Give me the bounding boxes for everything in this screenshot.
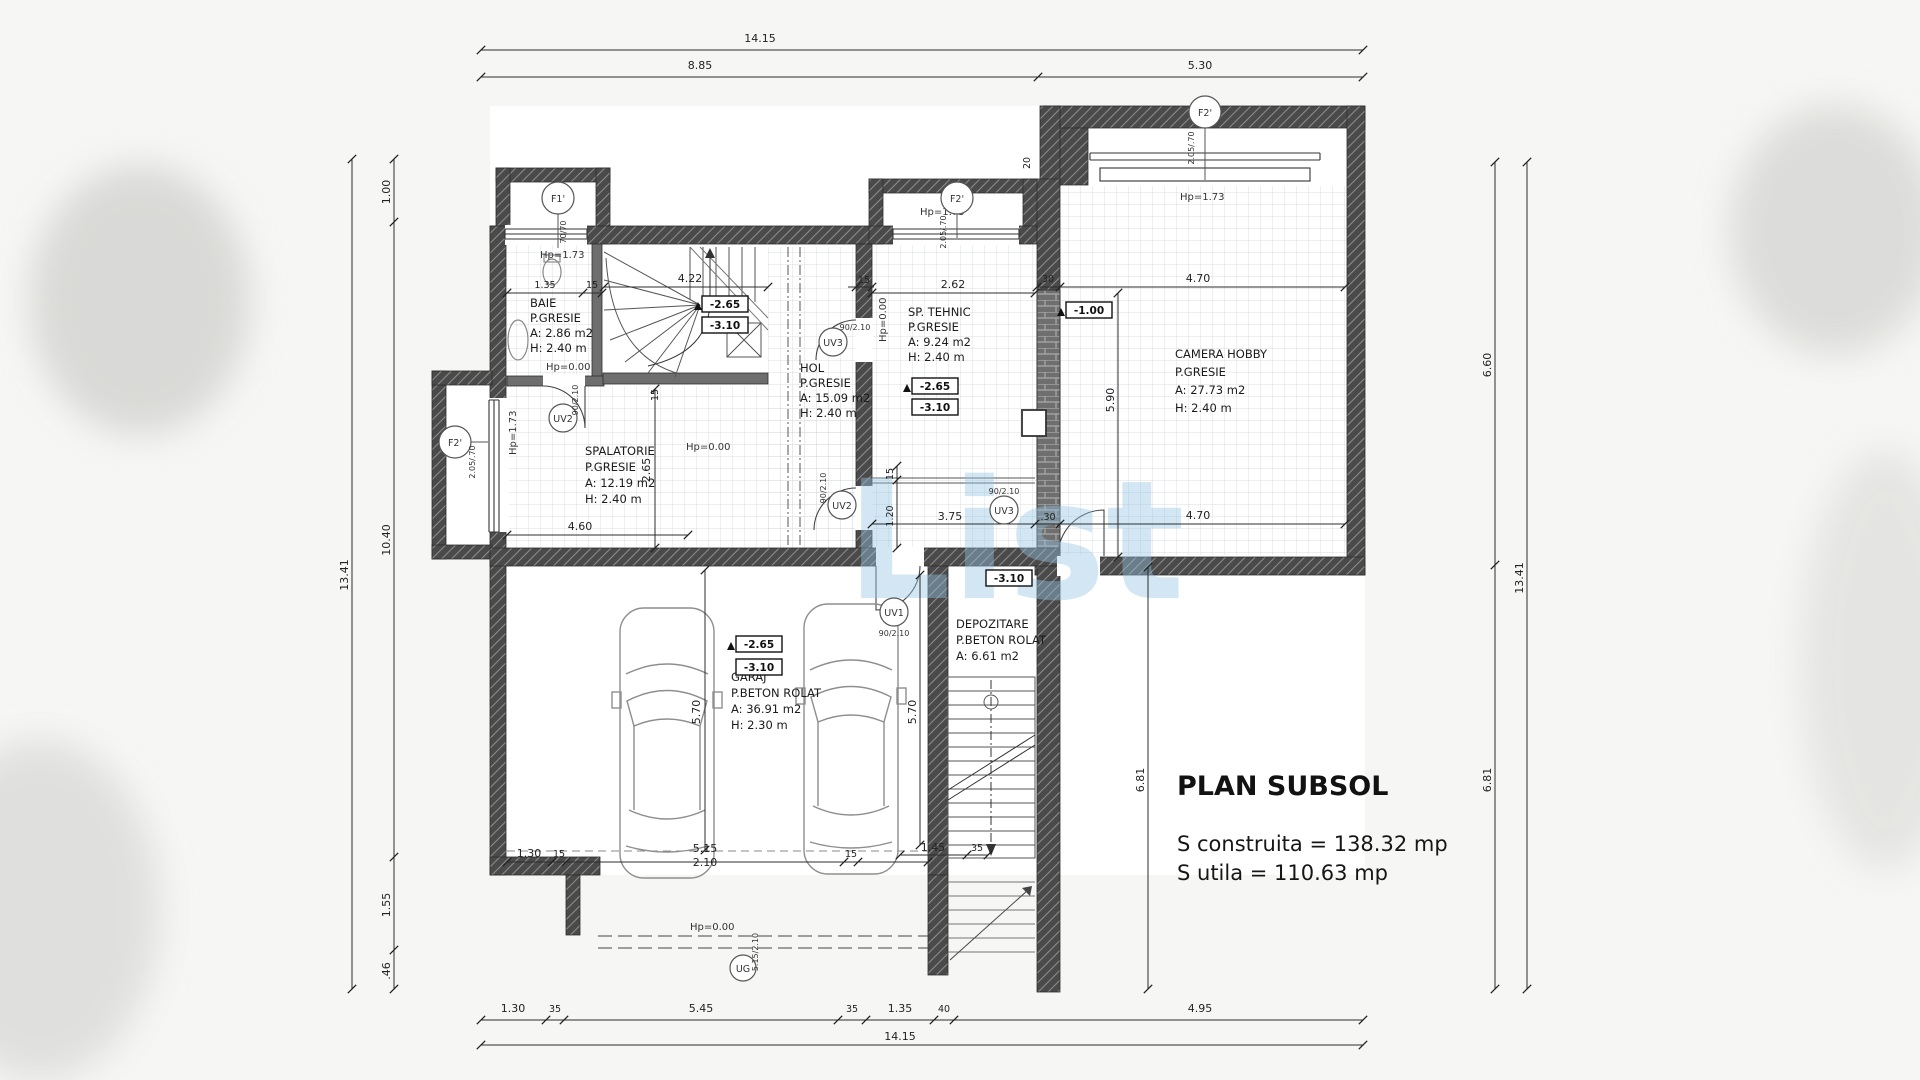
dim: 30 <box>1042 274 1054 285</box>
svg-text:A: 15.09 m2: A: 15.09 m2 <box>800 391 870 405</box>
dim: 4.22 <box>678 272 703 285</box>
dim: 15 <box>586 280 598 291</box>
svg-text:-3.10: -3.10 <box>710 320 740 332</box>
svg-text:DEPOZITARE: DEPOZITARE <box>956 617 1029 631</box>
svg-text:A: 36.91 m2: A: 36.91 m2 <box>731 702 801 716</box>
exterior-staircase <box>948 882 1035 960</box>
svg-text:UG: UG <box>736 964 750 975</box>
svg-text:UV3: UV3 <box>994 506 1014 517</box>
dim: 15 <box>553 849 565 860</box>
hp-label: Hp=1.73 <box>540 250 585 261</box>
svg-text:HOL: HOL <box>800 361 825 375</box>
hp-label: Hp=0.00 <box>686 442 731 453</box>
dim: 4.70 <box>1186 509 1211 522</box>
usable-area: S utila = 110.63 mp <box>1177 861 1388 885</box>
dim-total-right: 13.41 <box>1513 562 1526 594</box>
level-box: -3.10 <box>986 570 1032 586</box>
dim: 10.40 <box>380 524 393 556</box>
dim: 4.60 <box>568 520 593 533</box>
basement-staircase <box>948 677 1035 858</box>
svg-text:UV2: UV2 <box>553 414 573 425</box>
svg-text:P.GRESIE: P.GRESIE <box>800 376 851 390</box>
svg-text:UV2: UV2 <box>832 501 852 512</box>
svg-text:SP. TEHNIC: SP. TEHNIC <box>908 305 971 319</box>
svg-text:F2': F2' <box>1198 108 1212 119</box>
dim: 40 <box>938 1004 950 1015</box>
dim: 15 <box>845 849 857 860</box>
dim: 6.81 <box>1134 768 1147 793</box>
dim: 15 <box>885 468 896 480</box>
dim: 5.45 <box>689 1002 714 1015</box>
svg-text:90/2.10: 90/2.10 <box>840 323 871 332</box>
svg-text:P.BETON ROLAT: P.BETON ROLAT <box>731 686 822 700</box>
dim: 1.20 <box>885 505 896 526</box>
floor-plan-drawing: List 14.15 8.85 5.30 14.15 1.30 35 5.45 … <box>0 0 1920 1080</box>
svg-text:-2.65: -2.65 <box>710 299 740 311</box>
scanned-floor-plan-page: List 14.15 8.85 5.30 14.15 1.30 35 5.45 … <box>0 0 1920 1080</box>
svg-text:2.05/.70: 2.05/.70 <box>468 445 477 478</box>
dim: 35 <box>549 1004 561 1015</box>
level-box: -3.10 <box>736 659 782 675</box>
hp-label: Hp=0.00 <box>546 362 591 373</box>
svg-text:90/2.10: 90/2.10 <box>571 385 580 416</box>
svg-text:A: 6.61 m2: A: 6.61 m2 <box>956 649 1019 663</box>
svg-text:H: 2.30 m: H: 2.30 m <box>731 718 788 732</box>
wall-niche <box>1022 410 1046 436</box>
dim: 3.75 <box>938 510 963 523</box>
level-box: -3.10 <box>702 317 748 333</box>
svg-text:P.GRESIE: P.GRESIE <box>1175 365 1226 379</box>
svg-text:F2': F2' <box>448 438 462 449</box>
hp-label: Hp=1.73 <box>1180 192 1225 203</box>
svg-text:SPALATORIE: SPALATORIE <box>585 444 655 458</box>
dim: 1.35 <box>888 1002 913 1015</box>
hp-label: Hp=0.00 <box>878 297 889 342</box>
svg-text:A: 12.19 m2: A: 12.19 m2 <box>585 476 655 490</box>
dim: 4.70 <box>1186 272 1211 285</box>
dim: .46 <box>380 962 393 980</box>
svg-text:F1': F1' <box>551 194 565 205</box>
svg-text:-3.10: -3.10 <box>994 573 1024 585</box>
plan-title: PLAN SUBSOL <box>1177 771 1388 802</box>
svg-text:UV1: UV1 <box>884 608 904 619</box>
svg-text:5.15/2.10: 5.15/2.10 <box>751 933 760 971</box>
svg-text:H: 2.40 m: H: 2.40 m <box>585 492 642 506</box>
dim: .30 <box>1040 512 1055 523</box>
dim: 5.30 <box>1188 59 1213 72</box>
dim: 5.70 <box>906 700 919 725</box>
dim: 8.85 <box>688 59 713 72</box>
marker-uv1-garaj: UV190/2.10 <box>879 598 910 638</box>
svg-text:BAIE: BAIE <box>530 296 556 310</box>
dim: 1.35 <box>534 280 555 291</box>
hp-label: Hp=1.73 <box>508 410 519 455</box>
dim: 1.55 <box>380 893 393 918</box>
dim-total-left: 13.41 <box>338 559 351 591</box>
dim: 5.70 <box>690 700 703 725</box>
svg-text:2.05/.70: 2.05/.70 <box>1187 131 1196 164</box>
dim: 1.45 <box>921 841 946 854</box>
svg-text:H: 2.40 m: H: 2.40 m <box>908 350 965 364</box>
svg-text:F2': F2' <box>950 194 964 205</box>
dim: 35 <box>846 1004 858 1015</box>
svg-text:-2.65: -2.65 <box>744 639 774 651</box>
svg-text:A: 9.24 m2: A: 9.24 m2 <box>908 335 971 349</box>
dim: 1.00 <box>380 180 393 205</box>
svg-text:H: 2.40 m: H: 2.40 m <box>530 341 587 355</box>
room-label-sp-tehnic: SP. TEHNIC P.GRESIE A: 9.24 m2 H: 2.40 m <box>908 305 971 364</box>
dim: 5.90 <box>1104 388 1117 413</box>
svg-text:P.GRESIE: P.GRESIE <box>585 460 636 474</box>
svg-text:-3.10: -3.10 <box>920 402 950 414</box>
svg-text:A: 27.73 m2: A: 27.73 m2 <box>1175 383 1245 397</box>
level-box: -3.10 <box>912 399 958 415</box>
level-box: -2.65 <box>694 296 748 312</box>
svg-text:H: 2.40 m: H: 2.40 m <box>1175 401 1232 415</box>
dim: 20 <box>1022 157 1033 169</box>
hp-label: Hp=0.00 <box>690 922 735 933</box>
dim: 2.10 <box>693 856 718 869</box>
dim: 5.15 <box>693 842 718 855</box>
svg-text:-3.10: -3.10 <box>744 662 774 674</box>
dim-total-bottom: 14.15 <box>884 1030 916 1043</box>
svg-text:P.GRESIE: P.GRESIE <box>908 320 959 334</box>
dim: 1.30 <box>517 847 542 860</box>
dim: 6.81 <box>1481 768 1494 793</box>
dim: 35 <box>971 843 983 854</box>
svg-text:P.GRESIE: P.GRESIE <box>530 311 581 325</box>
dim: 6.60 <box>1481 353 1494 378</box>
svg-text:UV3: UV3 <box>823 338 843 349</box>
dim: 4.95 <box>1188 1002 1213 1015</box>
svg-text:90/2.10: 90/2.10 <box>879 629 910 638</box>
marker-ug-garage-door: UG5.15/2.10 <box>730 933 760 981</box>
svg-text:A: 2.86 m2: A: 2.86 m2 <box>530 326 593 340</box>
built-area: S construita = 138.32 mp <box>1177 832 1448 856</box>
garage-door-dashed <box>598 936 930 948</box>
svg-text:90/2.10: 90/2.10 <box>819 473 828 504</box>
svg-text:CAMERA HOBBY: CAMERA HOBBY <box>1175 347 1268 361</box>
marker-uv3-hobby: UV390/2.10 <box>989 487 1020 524</box>
svg-text:70/70: 70/70 <box>559 220 568 243</box>
svg-text:2.05/.70: 2.05/.70 <box>939 215 948 248</box>
svg-text:-2.65: -2.65 <box>920 381 950 393</box>
dim-total-top: 14.15 <box>744 32 776 45</box>
dim: 15 <box>858 275 870 286</box>
svg-text:-1.00: -1.00 <box>1074 305 1104 317</box>
dim: 15 <box>650 389 661 401</box>
dim: 2.62 <box>941 278 966 291</box>
svg-text:H: 2.40 m: H: 2.40 m <box>800 406 857 420</box>
svg-text:P.BETON ROLAT: P.BETON ROLAT <box>956 633 1047 647</box>
dim: 1.30 <box>501 1002 526 1015</box>
svg-text:90/2.10: 90/2.10 <box>989 487 1020 496</box>
